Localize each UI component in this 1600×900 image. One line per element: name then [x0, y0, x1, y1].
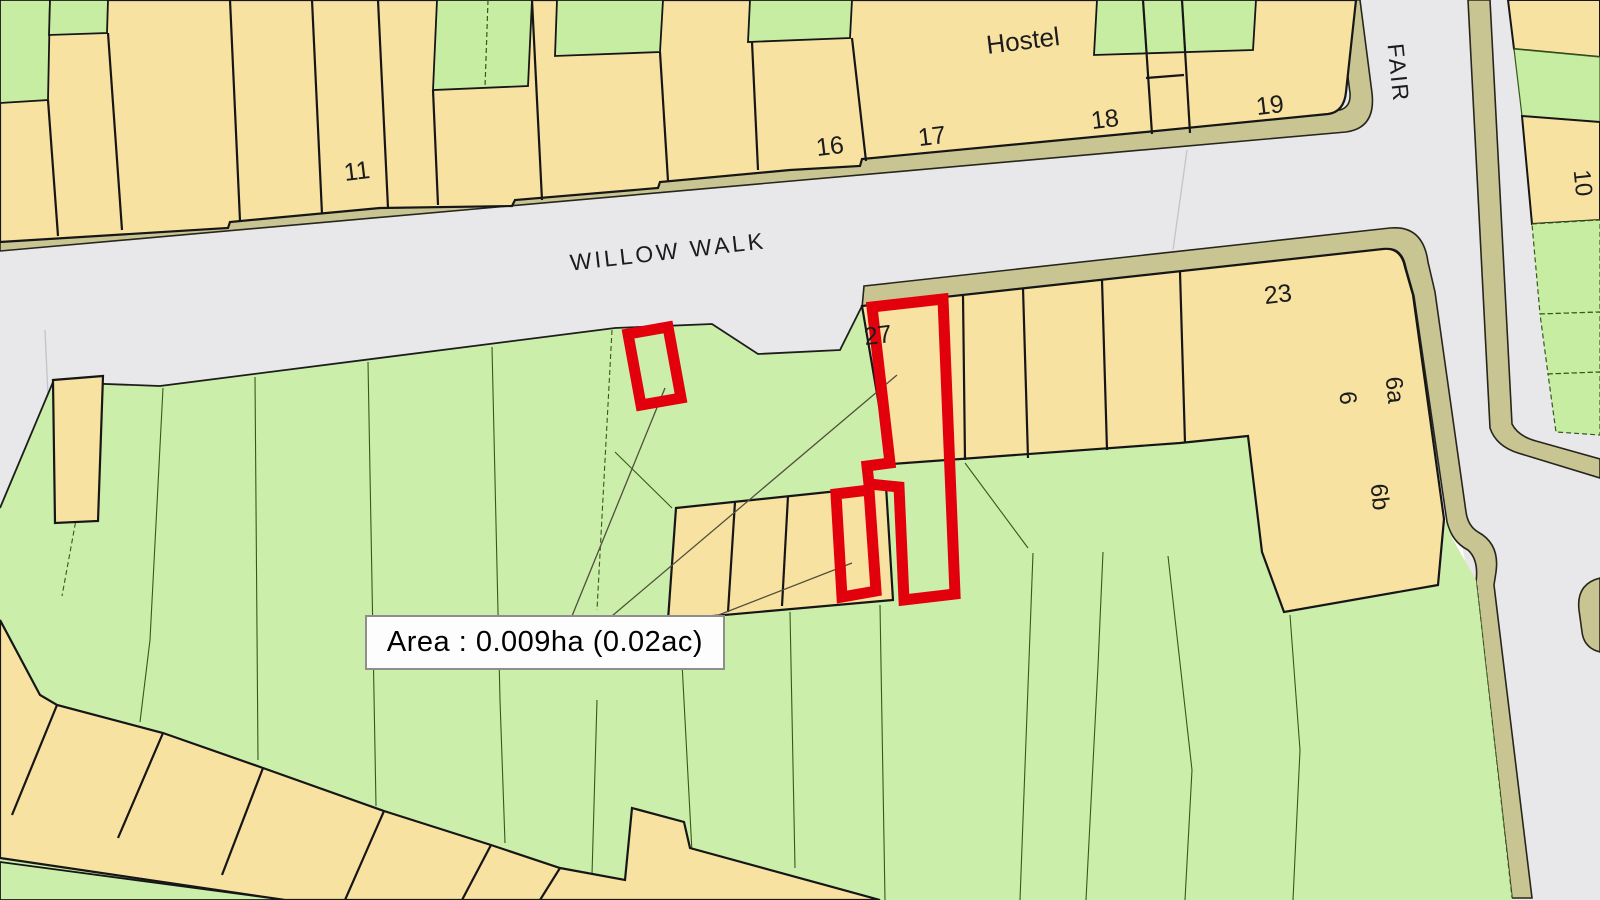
site-plan-map: [0, 0, 1600, 900]
area-measurement-label: Area : 0.009ha (0.02ac): [365, 615, 725, 670]
map-canvas[interactable]: 111617Hostel1819232766a6b10WILLOW WALKFA…: [0, 0, 1600, 900]
